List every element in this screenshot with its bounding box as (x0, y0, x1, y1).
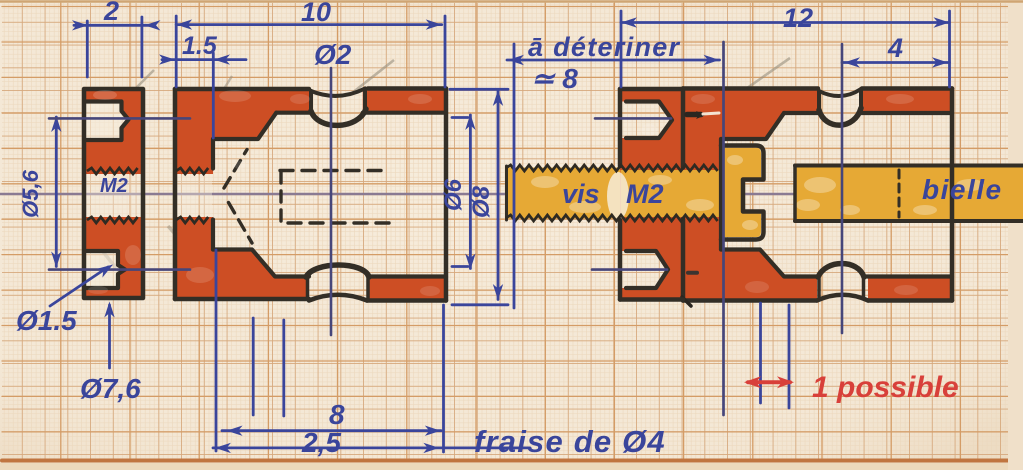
svg-text:1 possible: 1 possible (812, 371, 959, 404)
svg-text:Ø7,6: Ø7,6 (80, 373, 141, 404)
svg-text:2,5: 2,5 (301, 427, 341, 458)
svg-text:Ø6: Ø6 (440, 178, 467, 211)
svg-text:2: 2 (103, 0, 119, 26)
svg-text:1.5: 1.5 (182, 32, 218, 60)
svg-text:M2: M2 (100, 175, 128, 197)
svg-text:ā déteriner: ā déteriner (528, 32, 681, 62)
svg-text:Ø5,6: Ø5,6 (18, 169, 43, 217)
svg-text:≃ 8: ≃ 8 (531, 63, 578, 94)
svg-text:M2: M2 (626, 179, 664, 209)
svg-text:12: 12 (783, 3, 813, 33)
svg-text:10: 10 (301, 0, 331, 27)
svg-text:bielle: bielle (922, 174, 1003, 205)
svg-text:4: 4 (887, 33, 903, 63)
svg-text:Ø1.5: Ø1.5 (16, 305, 77, 336)
svg-text:8: 8 (329, 399, 345, 430)
svg-text:Ø8: Ø8 (468, 185, 495, 218)
svg-text:vis: vis (562, 179, 600, 209)
svg-text:fraise de Ø4: fraise de Ø4 (474, 424, 666, 459)
svg-text:Ø2: Ø2 (314, 39, 352, 70)
